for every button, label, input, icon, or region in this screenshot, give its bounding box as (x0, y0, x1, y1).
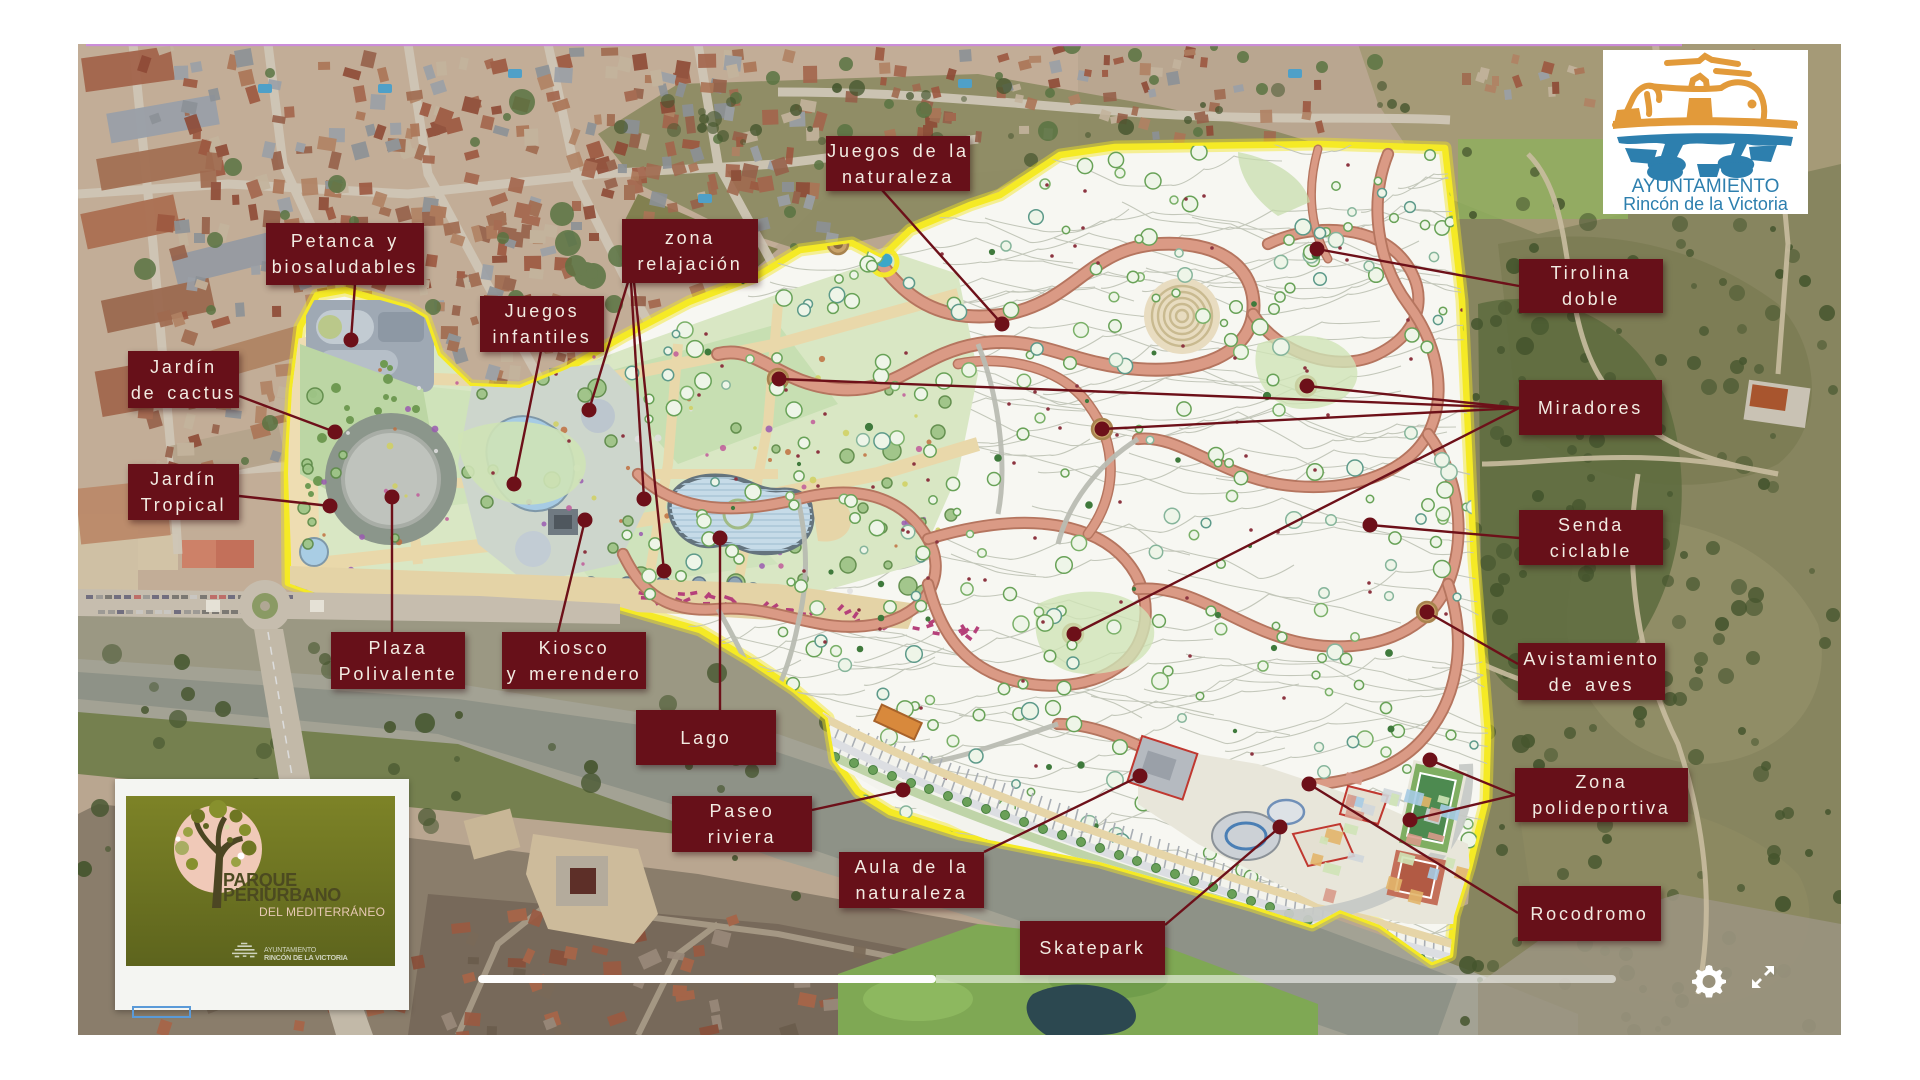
svg-text:DEL MEDITERRÁNEO: DEL MEDITERRÁNEO (259, 904, 385, 919)
svg-text:RINCÓN DE LA VICTORIA: RINCÓN DE LA VICTORIA (264, 953, 348, 962)
svg-text:PERIURBANO: PERIURBANO (223, 885, 341, 905)
